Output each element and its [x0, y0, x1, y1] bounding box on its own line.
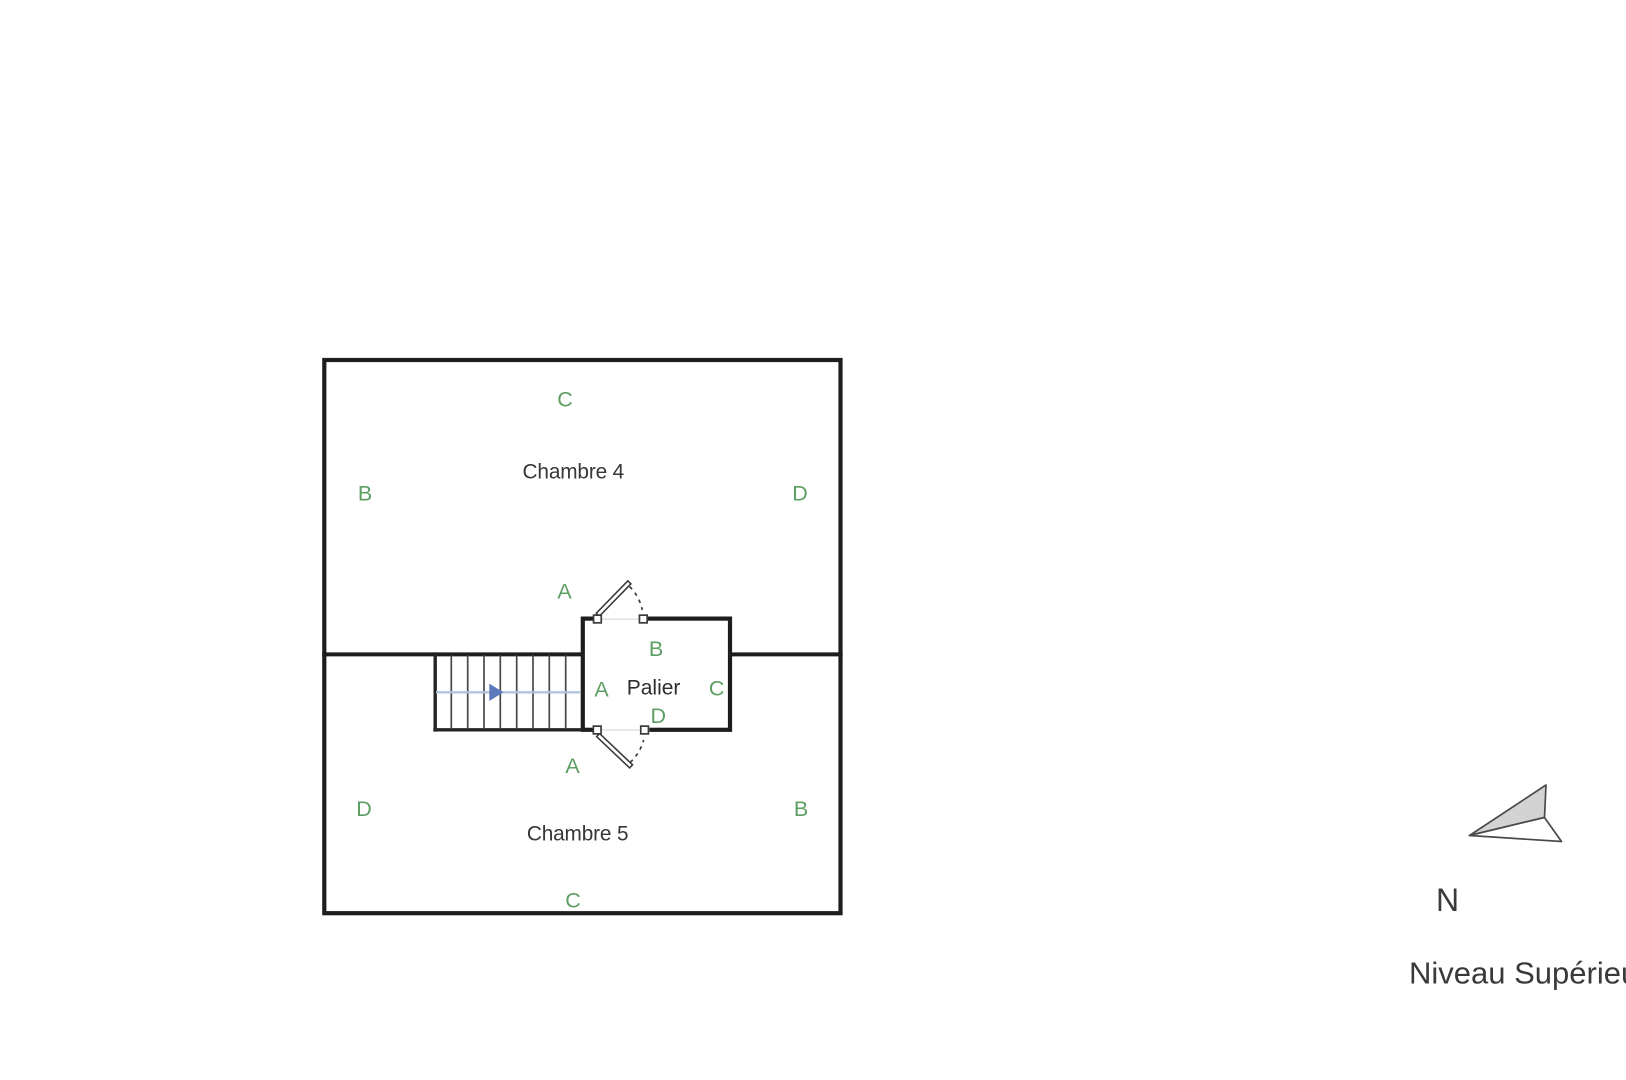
svg-text:D: D: [792, 482, 808, 506]
svg-text:C: C: [709, 676, 725, 700]
svg-text:B: B: [358, 482, 372, 506]
svg-text:D: D: [356, 797, 372, 821]
svg-text:A: A: [557, 580, 572, 604]
svg-text:C: C: [565, 889, 581, 913]
svg-text:B: B: [794, 797, 808, 821]
svg-text:Niveau Supérieur: Niveau Supérieur: [1409, 956, 1626, 991]
svg-text:A: A: [565, 754, 580, 778]
svg-text:N: N: [1436, 882, 1459, 918]
svg-text:Chambre 5: Chambre 5: [527, 823, 629, 846]
svg-text:D: D: [651, 704, 667, 728]
svg-text:Chambre 4: Chambre 4: [523, 460, 625, 483]
svg-text:C: C: [557, 388, 573, 412]
svg-text:Palier: Palier: [627, 677, 681, 700]
svg-text:B: B: [649, 637, 663, 661]
svg-text:A: A: [594, 677, 609, 701]
